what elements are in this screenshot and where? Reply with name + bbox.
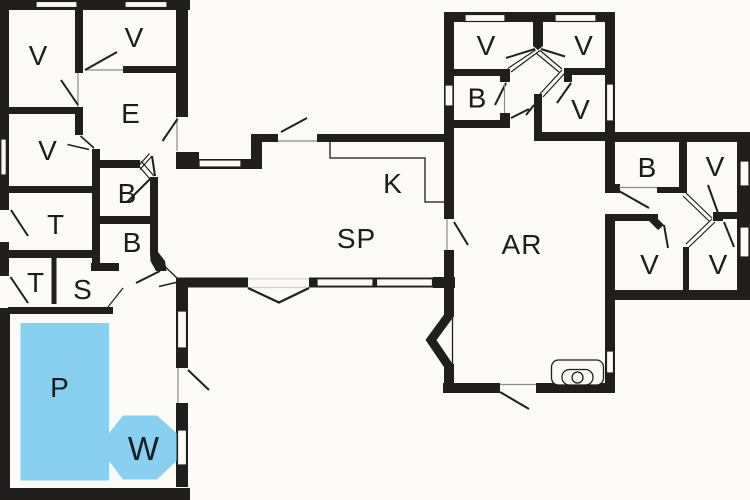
svg-text:P: P [50,372,69,403]
svg-text:B: B [638,152,657,183]
svg-text:V: V [125,22,144,53]
svg-text:V: V [574,30,593,61]
svg-text:T: T [47,209,64,240]
svg-text:E: E [121,98,140,129]
svg-text:B: B [118,178,137,209]
svg-text:T: T [27,267,44,298]
svg-text:S: S [73,274,92,305]
svg-text:AR: AR [502,229,543,260]
svg-text:B: B [468,83,487,114]
svg-text:K: K [383,168,402,199]
svg-text:SP: SP [337,223,376,254]
svg-text:V: V [29,40,48,71]
svg-text:B: B [123,227,142,258]
svg-text:V: V [709,249,728,280]
svg-text:V: V [38,135,57,166]
svg-text:V: V [571,94,590,125]
svg-text:V: V [477,30,496,61]
svg-text:V: V [640,249,659,280]
svg-text:W: W [128,430,160,467]
svg-text:V: V [706,151,725,182]
